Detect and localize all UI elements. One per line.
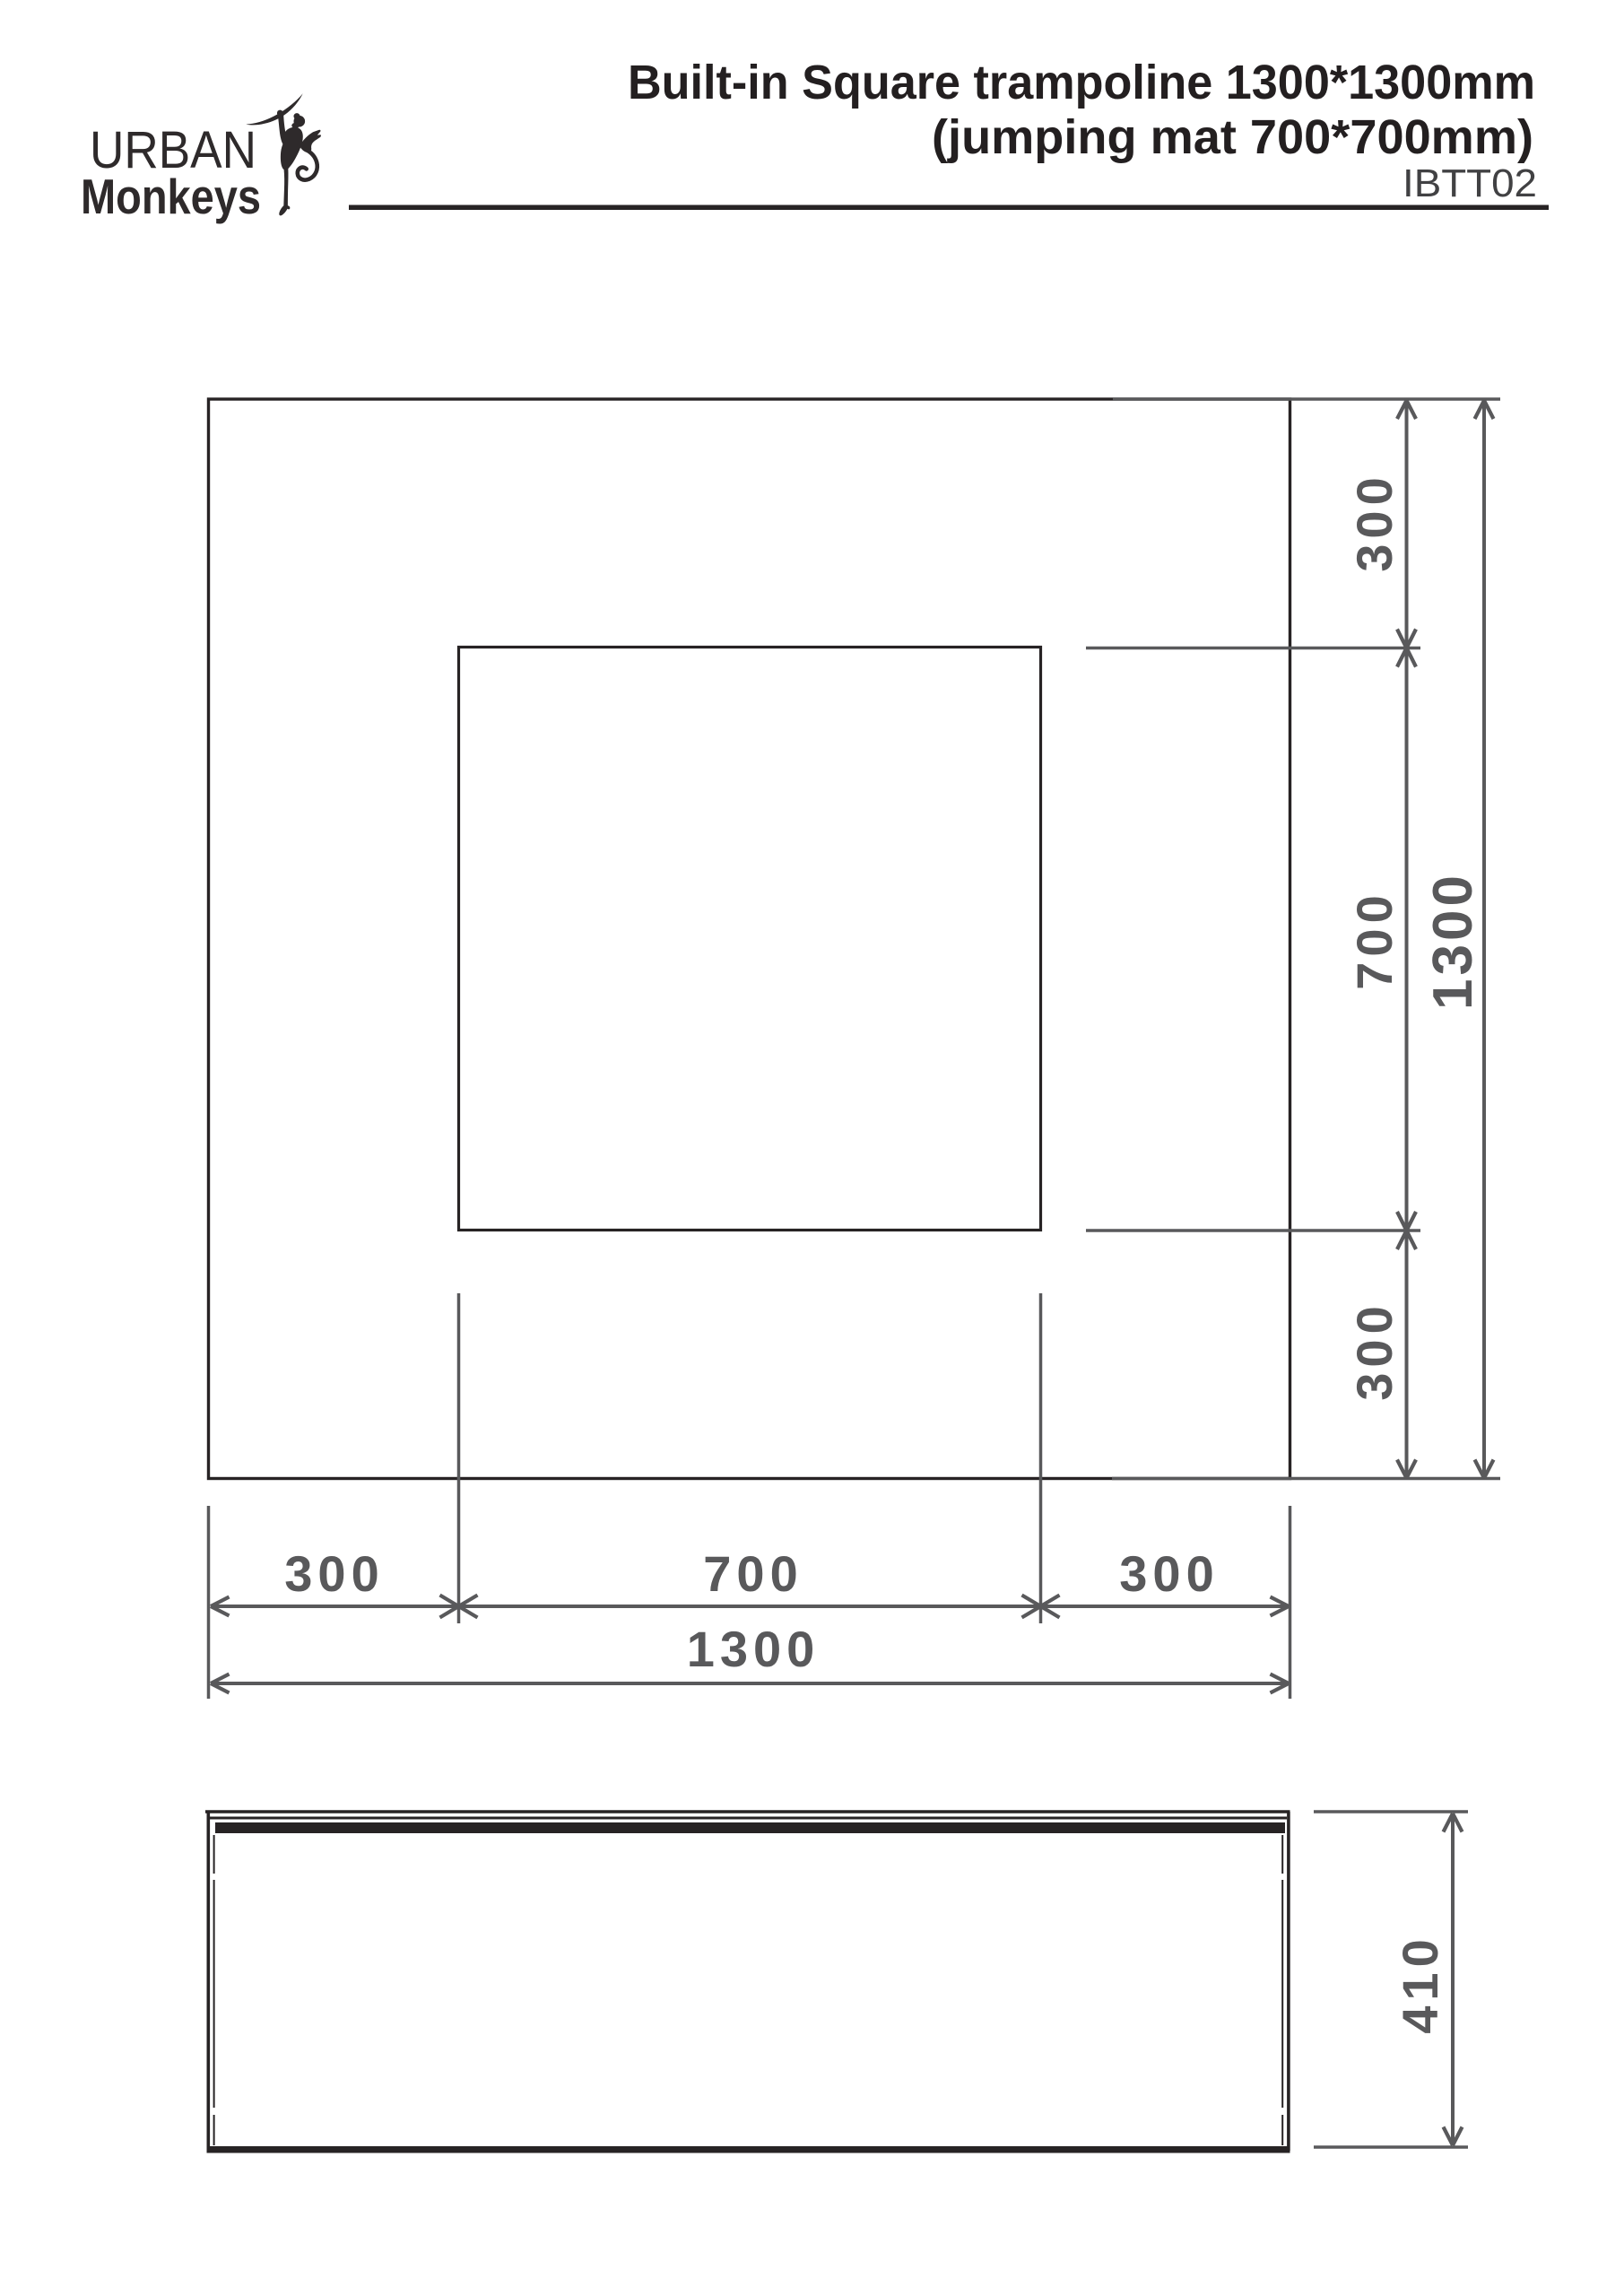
svg-text:(jumping mat 700*700mm): (jumping mat 700*700mm) (932, 110, 1533, 164)
svg-text:700: 700 (1346, 890, 1403, 989)
svg-text:700: 700 (703, 1545, 803, 1602)
svg-text:410: 410 (1392, 1934, 1448, 2033)
svg-text:Built-in Square trampoline 130: Built-in Square trampoline 1300*1300mm (628, 56, 1535, 109)
svg-text:IBTT02: IBTT02 (1403, 161, 1537, 205)
svg-text:300: 300 (1119, 1545, 1219, 1602)
svg-text:300: 300 (1346, 1300, 1403, 1400)
svg-text:300: 300 (284, 1545, 384, 1602)
svg-text:1300: 1300 (687, 1621, 821, 1677)
svg-text:1300: 1300 (1422, 872, 1484, 1010)
svg-text:300: 300 (1346, 472, 1403, 571)
svg-text:Monkeys: Monkeys (81, 169, 261, 224)
